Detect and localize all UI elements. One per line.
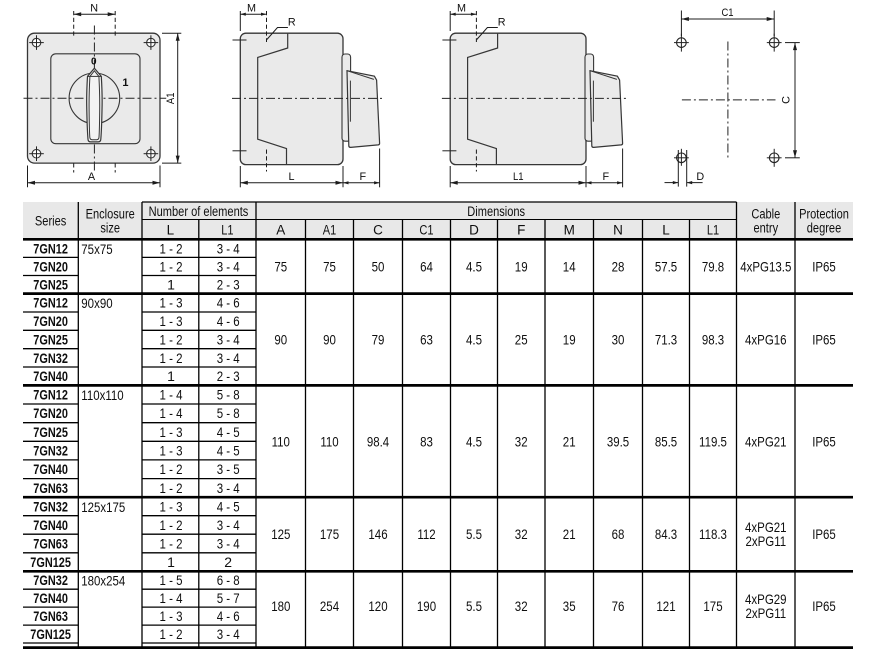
svg-text:7GN32: 7GN32 [33,572,68,588]
svg-text:4 - 6: 4 - 6 [217,313,240,329]
svg-text:L: L [662,222,670,237]
svg-text:119.5: 119.5 [699,433,727,449]
svg-text:F: F [517,222,525,237]
svg-text:83: 83 [420,433,433,449]
svg-text:85.5: 85.5 [655,433,677,449]
svg-text:50: 50 [372,259,385,275]
svg-text:71.3: 71.3 [655,332,677,348]
svg-text:1 - 4: 1 - 4 [160,405,183,421]
svg-text:1 - 2: 1 - 2 [160,626,183,642]
svg-text:4xPG21: 4xPG21 [745,433,787,449]
svg-text:120: 120 [368,598,387,614]
svg-text:1 - 3: 1 - 3 [160,608,183,624]
svg-text:190: 190 [417,598,436,614]
svg-text:118.3: 118.3 [699,526,727,542]
svg-text:7GN25: 7GN25 [33,331,68,347]
svg-text:1 - 2: 1 - 2 [160,535,183,551]
svg-text:2: 2 [224,554,232,570]
svg-text:Cable: Cable [751,207,780,222]
svg-text:7GN63: 7GN63 [33,480,68,496]
svg-text:84.3: 84.3 [655,526,677,542]
svg-text:D: D [469,222,479,237]
svg-text:3 - 4: 3 - 4 [217,480,240,496]
svg-text:7GN12: 7GN12 [33,387,68,403]
svg-text:75: 75 [323,259,336,275]
svg-text:21: 21 [563,433,576,449]
svg-text:175: 175 [703,598,722,614]
svg-text:7GN32: 7GN32 [33,350,68,366]
svg-text:N: N [90,3,98,15]
svg-text:3 - 4: 3 - 4 [217,258,240,274]
svg-text:32: 32 [515,433,528,449]
svg-text:7GN40: 7GN40 [33,461,68,477]
svg-text:4 - 5: 4 - 5 [217,443,240,459]
svg-text:R: R [498,17,506,29]
svg-text:Protection: Protection [799,207,849,222]
svg-text:3 - 4: 3 - 4 [217,240,240,256]
svg-text:5.5: 5.5 [466,598,482,614]
svg-text:1 - 4: 1 - 4 [160,387,183,403]
svg-text:180x254: 180x254 [81,573,125,589]
svg-text:7GN12: 7GN12 [33,240,68,256]
svg-text:Enclosure: Enclosure [86,207,135,222]
svg-text:35: 35 [563,598,576,614]
svg-text:112: 112 [417,526,435,542]
svg-text:90: 90 [274,332,287,348]
svg-text:7GN125: 7GN125 [30,626,71,642]
svg-text:57.5: 57.5 [655,259,677,275]
svg-text:F: F [359,171,366,183]
svg-text:7GN20: 7GN20 [33,313,68,329]
svg-text:M: M [247,3,256,15]
svg-text:L: L [288,171,294,183]
svg-text:1 - 3: 1 - 3 [160,424,183,440]
svg-text:1 - 3: 1 - 3 [160,443,183,459]
svg-text:C1: C1 [419,222,433,237]
svg-text:110: 110 [272,433,290,449]
svg-text:21: 21 [563,526,576,542]
svg-text:5 - 7: 5 - 7 [217,590,240,606]
svg-text:4 - 6: 4 - 6 [217,295,240,311]
svg-text:2xPG11: 2xPG11 [746,533,787,549]
svg-text:7GN25: 7GN25 [33,424,68,440]
svg-text:A: A [88,171,96,183]
svg-text:Number of elements: Number of elements [149,204,249,219]
svg-text:14: 14 [563,259,576,275]
svg-text:121: 121 [656,598,675,614]
svg-text:4.5: 4.5 [466,433,482,449]
svg-text:7GN125: 7GN125 [30,554,71,570]
svg-text:5 - 8: 5 - 8 [217,387,240,403]
svg-text:L1: L1 [221,222,233,237]
svg-text:7GN40: 7GN40 [33,590,68,606]
svg-text:IP65: IP65 [812,332,836,348]
svg-text:1 - 3: 1 - 3 [160,313,183,329]
svg-text:39.5: 39.5 [607,433,629,449]
svg-text:64: 64 [420,259,433,275]
svg-text:4 - 6: 4 - 6 [217,608,240,624]
svg-text:110x110: 110x110 [81,387,123,403]
svg-text:7GN25: 7GN25 [33,276,68,292]
svg-text:L1: L1 [513,171,524,183]
svg-text:L1: L1 [707,222,719,237]
svg-text:4 - 5: 4 - 5 [217,498,240,514]
svg-text:3 - 4: 3 - 4 [217,331,240,347]
svg-text:A: A [276,222,285,237]
svg-text:1 - 2: 1 - 2 [160,517,183,533]
svg-text:1 - 2: 1 - 2 [160,461,183,477]
svg-text:90x90: 90x90 [81,295,112,311]
svg-text:Series: Series [35,213,67,228]
svg-text:C1: C1 [721,7,733,19]
svg-text:30: 30 [612,332,625,348]
svg-text:3 - 4: 3 - 4 [217,626,240,642]
svg-text:75x75: 75x75 [81,241,112,257]
svg-text:3 - 4: 3 - 4 [217,517,240,533]
svg-text:4 - 5: 4 - 5 [217,424,240,440]
svg-text:1: 1 [167,368,175,384]
svg-text:1 - 2: 1 - 2 [160,350,183,366]
svg-text:3 - 4: 3 - 4 [217,350,240,366]
svg-text:1 - 2: 1 - 2 [160,480,183,496]
svg-text:L: L [167,222,175,237]
svg-text:D: D [696,171,704,183]
svg-text:32: 32 [515,598,528,614]
svg-text:1: 1 [167,276,175,292]
svg-text:entry: entry [754,221,779,236]
svg-text:19: 19 [515,259,528,275]
svg-text:1 - 5: 1 - 5 [160,572,183,588]
svg-text:146: 146 [368,526,387,542]
svg-text:7GN32: 7GN32 [33,443,68,459]
svg-text:110: 110 [320,433,338,449]
svg-text:79: 79 [372,332,385,348]
svg-text:Dimensions: Dimensions [467,204,525,219]
svg-text:C: C [373,222,383,237]
svg-text:3 - 5: 3 - 5 [217,461,240,477]
svg-text:IP65: IP65 [812,598,836,614]
svg-text:4.5: 4.5 [466,259,482,275]
svg-text:1 - 4: 1 - 4 [160,590,183,606]
svg-text:M: M [457,3,466,15]
svg-text:IP65: IP65 [812,526,836,542]
svg-text:IP65: IP65 [812,259,836,275]
svg-text:75: 75 [274,259,287,275]
svg-text:7GN40: 7GN40 [33,368,68,384]
svg-text:63: 63 [420,332,433,348]
svg-text:98.3: 98.3 [702,332,724,348]
svg-text:4.5: 4.5 [466,332,482,348]
svg-text:19: 19 [563,332,576,348]
svg-text:1 - 3: 1 - 3 [160,295,183,311]
svg-text:size: size [100,221,120,236]
svg-text:7GN63: 7GN63 [33,608,68,624]
svg-text:2xPG11: 2xPG11 [746,605,787,621]
svg-text:68: 68 [612,526,625,542]
svg-text:90: 90 [323,332,336,348]
svg-text:IP65: IP65 [812,433,836,449]
svg-text:175: 175 [320,526,339,542]
svg-text:125x175: 125x175 [81,499,125,515]
svg-text:254: 254 [320,598,339,614]
svg-text:R: R [288,17,296,29]
svg-text:1 - 3: 1 - 3 [160,498,183,514]
svg-text:76: 76 [612,598,625,614]
svg-text:1: 1 [167,554,175,570]
svg-text:F: F [602,171,609,183]
svg-text:C: C [781,96,793,104]
svg-text:5 - 8: 5 - 8 [217,405,240,421]
svg-text:3 - 4: 3 - 4 [217,535,240,551]
svg-text:7GN40: 7GN40 [33,517,68,533]
svg-text:7GN20: 7GN20 [33,405,68,421]
svg-text:7GN20: 7GN20 [33,258,68,274]
svg-text:180: 180 [271,598,290,614]
svg-text:1 - 2: 1 - 2 [160,240,183,256]
svg-text:98.4: 98.4 [367,433,389,449]
svg-text:A1: A1 [165,93,177,105]
svg-text:4xPG16: 4xPG16 [745,332,787,348]
svg-text:28: 28 [612,259,625,275]
svg-text:A1: A1 [323,222,337,237]
svg-text:7GN12: 7GN12 [33,295,68,311]
svg-text:1: 1 [122,77,128,89]
svg-text:125: 125 [271,526,290,542]
svg-text:32: 32 [515,526,528,542]
svg-text:2 - 3: 2 - 3 [217,276,240,292]
svg-text:1 - 2: 1 - 2 [160,331,183,347]
svg-text:4xPG13.5: 4xPG13.5 [740,259,791,275]
svg-text:0: 0 [91,57,97,68]
svg-text:79.8: 79.8 [702,259,724,275]
svg-text:25: 25 [515,332,528,348]
svg-text:degree: degree [807,221,842,236]
svg-text:M: M [564,222,575,237]
svg-text:7GN63: 7GN63 [33,535,68,551]
svg-text:6 - 8: 6 - 8 [217,572,240,588]
svg-text:1 - 2: 1 - 2 [160,258,183,274]
svg-text:2 - 3: 2 - 3 [217,368,240,384]
svg-text:7GN32: 7GN32 [33,498,68,514]
svg-text:N: N [613,222,623,237]
svg-text:5.5: 5.5 [466,526,482,542]
